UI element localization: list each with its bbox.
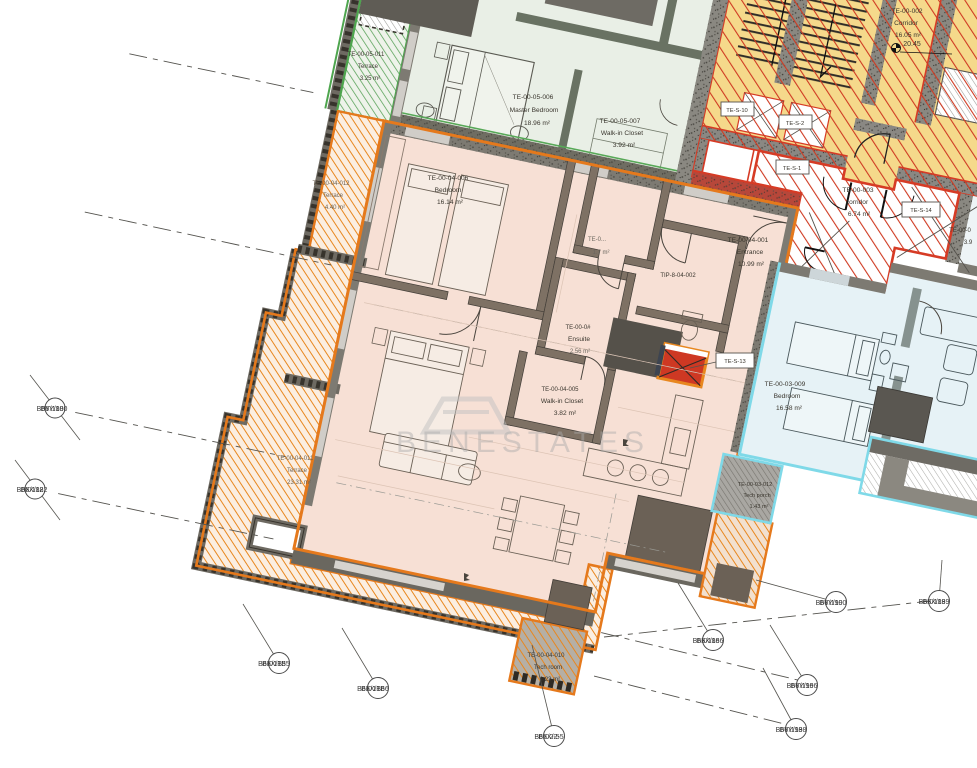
svg-text:Terrace: Terrace bbox=[323, 193, 344, 199]
svg-text:TE-00-03-009: TE-00-03-009 bbox=[765, 381, 806, 388]
svg-text:TE-00-0#: TE-00-0# bbox=[565, 325, 591, 331]
svg-text:3.92 m²: 3.92 m² bbox=[613, 142, 636, 149]
svg-text:TE-S-2: TE-S-2 bbox=[786, 121, 804, 127]
svg-text:B6X/186: B6X/186 bbox=[697, 638, 724, 645]
svg-text:TE-00-05-007: TE-00-05-007 bbox=[600, 118, 641, 125]
svg-text:BENESTATES: BENESTATES bbox=[396, 426, 650, 459]
svg-text:TE-00-04-011: TE-00-04-011 bbox=[277, 456, 314, 462]
svg-text:1.43 m²: 1.43 m² bbox=[750, 504, 769, 510]
svg-text:B6X/2-5: B6X/2-5 bbox=[538, 734, 563, 741]
svg-text:TE-00-04-005: TE-00-04-005 bbox=[541, 387, 579, 393]
svg-text:TE-0...: TE-0... bbox=[588, 237, 606, 243]
svg-text:Corridor: Corridor bbox=[894, 20, 919, 27]
svg-text:Walk-in Closet: Walk-in Closet bbox=[601, 130, 643, 137]
svg-text:TIP-8-04-002: TIP-8-04-002 bbox=[660, 273, 696, 279]
svg-text:B6X/1B6: B6X/1B6 bbox=[361, 686, 389, 693]
svg-text:10.99 m²: 10.99 m² bbox=[738, 261, 765, 268]
svg-text:1.7 m²: 1.7 m² bbox=[592, 250, 609, 256]
svg-text:B6X/1B5: B6X/1B5 bbox=[262, 661, 290, 668]
svg-text:Entrance: Entrance bbox=[737, 249, 764, 256]
svg-text:1.23 m²: 1.23 m² bbox=[540, 677, 560, 683]
svg-text:Ensuite: Ensuite bbox=[568, 336, 590, 343]
svg-text:TE-00-0: TE-00-0 bbox=[949, 228, 971, 234]
svg-text:B6Y/198: B6Y/198 bbox=[780, 727, 807, 734]
svg-text:16.05 m²: 16.05 m² bbox=[895, 32, 922, 39]
svg-text:corridor: corridor bbox=[846, 199, 869, 206]
svg-text:B6Y/196: B6Y/196 bbox=[791, 683, 818, 690]
svg-text:TE-S-10: TE-S-10 bbox=[726, 108, 748, 114]
svg-text:16.14 m²: 16.14 m² bbox=[437, 199, 464, 206]
svg-text:6.74 m²: 6.74 m² bbox=[848, 211, 871, 218]
svg-text:B6Y/190: B6Y/190 bbox=[820, 600, 847, 607]
svg-text:23.31 m²: 23.31 m² bbox=[287, 480, 311, 486]
svg-text:3.25 m²: 3.25 m² bbox=[360, 76, 380, 82]
svg-text:TE-00-04-012: TE-00-04-012 bbox=[312, 181, 350, 187]
svg-text:TE-00-03-012: TE-00-03-012 bbox=[738, 482, 773, 488]
svg-text:Bedroom: Bedroom bbox=[774, 393, 801, 400]
svg-text:TE-00-002: TE-00-002 bbox=[891, 8, 922, 15]
svg-text:TE-00-05-006: TE-00-05-006 bbox=[513, 94, 554, 101]
svg-text:Terrace: Terrace bbox=[287, 468, 308, 474]
svg-text:TE-S-13: TE-S-13 bbox=[724, 359, 746, 365]
svg-text:B6Y/180: B6Y/180 bbox=[41, 406, 68, 413]
svg-text:3.82 m²: 3.82 m² bbox=[554, 410, 577, 417]
svg-text:TE-00-05-011: TE-00-05-011 bbox=[348, 52, 385, 58]
svg-text:TE-S-1: TE-S-1 bbox=[783, 166, 801, 172]
svg-text:B6X/182: B6X/182 bbox=[21, 487, 48, 494]
svg-text:Bedroom: Bedroom bbox=[435, 187, 462, 194]
svg-text:Master Bedroom: Master Bedroom bbox=[510, 107, 559, 114]
svg-text:TE-00-003: TE-00-003 bbox=[842, 187, 873, 194]
svg-text:4.40 m²: 4.40 m² bbox=[325, 205, 345, 211]
svg-text:TE-S-14: TE-S-14 bbox=[910, 208, 932, 214]
svg-text:18.96 m²: 18.96 m² bbox=[524, 120, 551, 127]
svg-text:2.56 m²: 2.56 m² bbox=[570, 349, 590, 355]
svg-text:20.45: 20.45 bbox=[903, 41, 921, 48]
svg-text:Tech porch: Tech porch bbox=[743, 493, 770, 499]
svg-text:Walk-in Closet: Walk-in Closet bbox=[541, 398, 583, 405]
svg-text:TE-00-04-001: TE-00-04-001 bbox=[728, 237, 769, 244]
svg-text:16.58 m²: 16.58 m² bbox=[776, 405, 803, 412]
svg-text:3.9: 3.9 bbox=[964, 240, 973, 246]
svg-text:B6X/189: B6X/189 bbox=[923, 599, 950, 606]
svg-text:Terrace: Terrace bbox=[358, 64, 379, 70]
svg-text:TE-00-04-006: TE-00-04-006 bbox=[428, 175, 469, 182]
svg-text:TE-00-04-010: TE-00-04-010 bbox=[527, 653, 565, 659]
